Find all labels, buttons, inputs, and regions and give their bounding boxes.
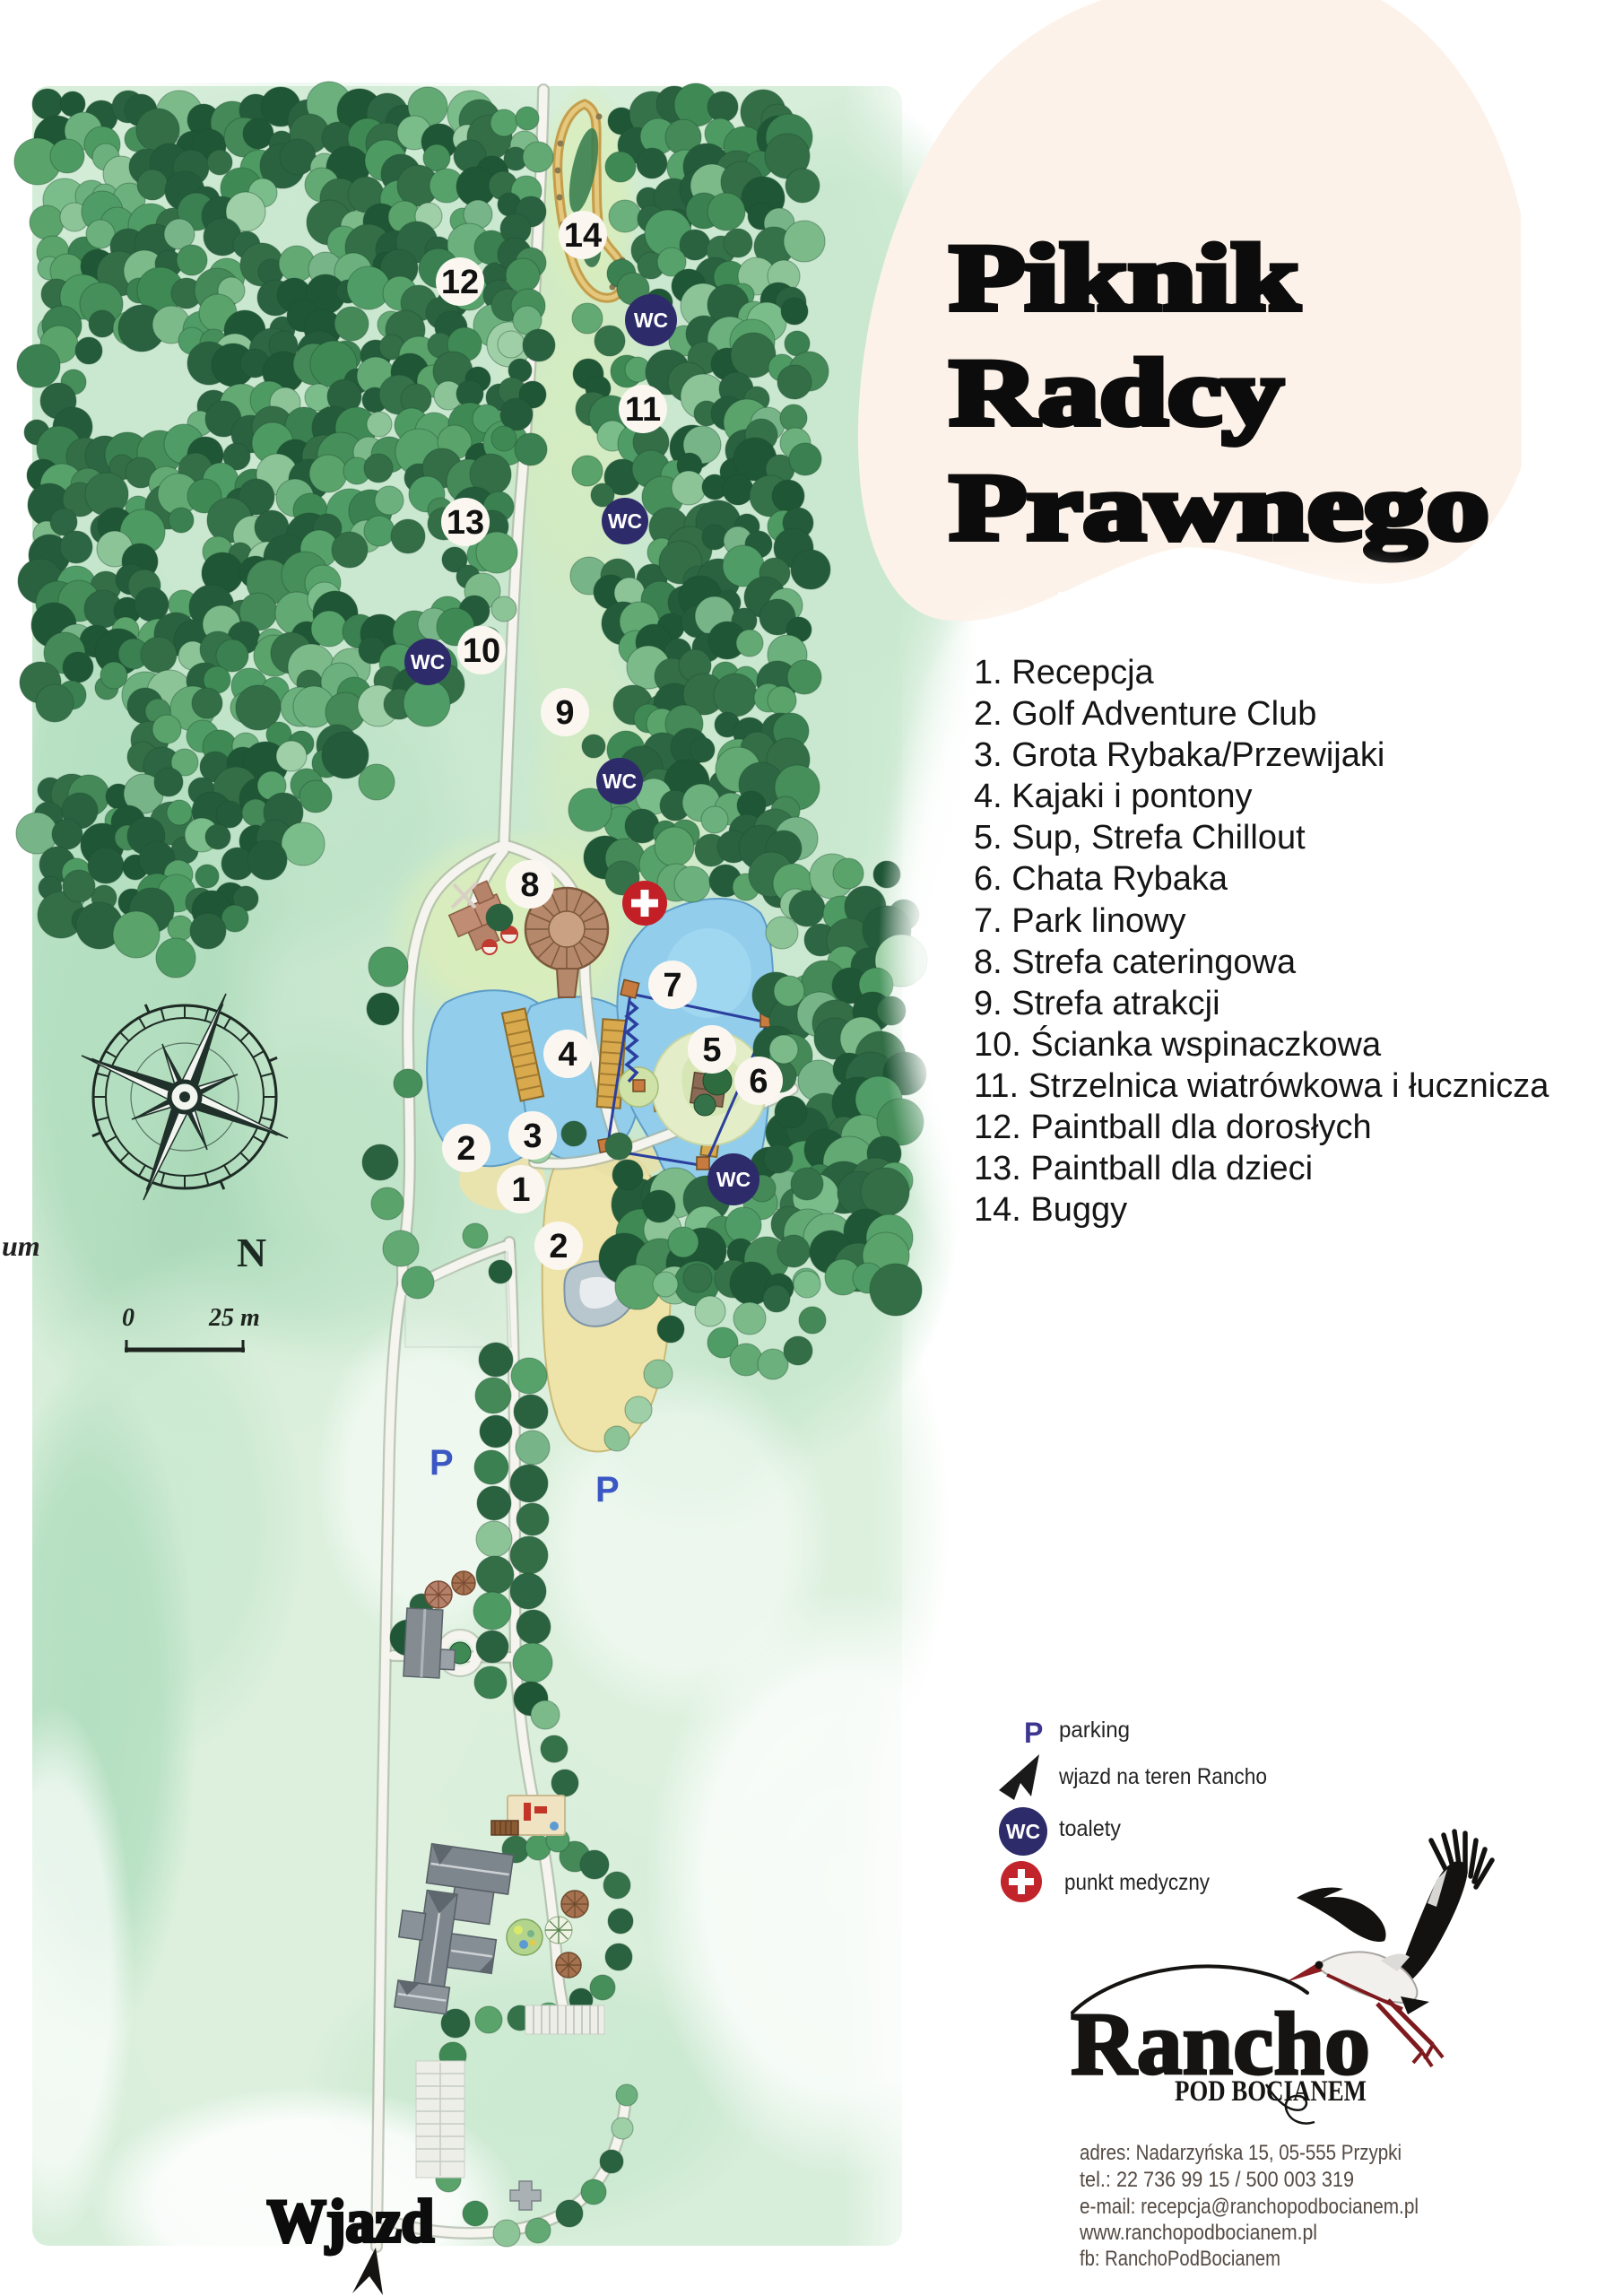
svg-text:wjazd na teren Rancho: wjazd na teren Rancho: [1058, 1764, 1267, 1789]
svg-text:9: 9: [555, 694, 574, 732]
svg-text:12: 12: [441, 264, 479, 301]
svg-text:WC: WC: [411, 650, 445, 674]
svg-text:Radcy: Radcy: [950, 340, 1283, 445]
svg-text:Wjazd: Wjazd: [267, 2187, 434, 2255]
svg-text:WC: WC: [603, 770, 637, 793]
svg-text:P: P: [595, 1470, 620, 1509]
svg-text:WC: WC: [608, 509, 642, 533]
svg-text:WC: WC: [634, 309, 668, 332]
svg-text:13: 13: [447, 504, 484, 542]
svg-text:P: P: [1024, 1717, 1043, 1749]
svg-text:parking: parking: [1059, 1718, 1130, 1743]
svg-text:3: 3: [523, 1118, 542, 1155]
svg-text:11: 11: [625, 391, 661, 429]
svg-text:14: 14: [564, 217, 602, 255]
svg-text:toalety: toalety: [1059, 1816, 1121, 1841]
svg-text:1: 1: [511, 1171, 530, 1209]
svg-text:Prawnego: Prawnego: [950, 455, 1489, 560]
svg-text:2: 2: [549, 1228, 568, 1265]
svg-text:0: 0: [122, 1304, 135, 1332]
svg-text:2: 2: [456, 1130, 475, 1168]
svg-text:N: N: [237, 1230, 266, 1275]
svg-text:8: 8: [520, 866, 539, 904]
svg-text:5: 5: [702, 1031, 721, 1069]
svg-text:4: 4: [558, 1036, 577, 1074]
svg-text:6: 6: [749, 1063, 768, 1100]
svg-text:25 m: 25 m: [208, 1304, 260, 1332]
svg-text:10: 10: [463, 632, 500, 670]
svg-text:WC: WC: [1006, 1820, 1040, 1843]
svg-text:P: P: [430, 1443, 454, 1483]
svg-text:Piknik: Piknik: [950, 225, 1299, 330]
svg-text:um: um: [2, 1230, 40, 1262]
svg-text:7: 7: [663, 967, 681, 1004]
svg-text:punkt medyczny: punkt medyczny: [1064, 1870, 1210, 1895]
svg-text:WC: WC: [716, 1168, 751, 1191]
